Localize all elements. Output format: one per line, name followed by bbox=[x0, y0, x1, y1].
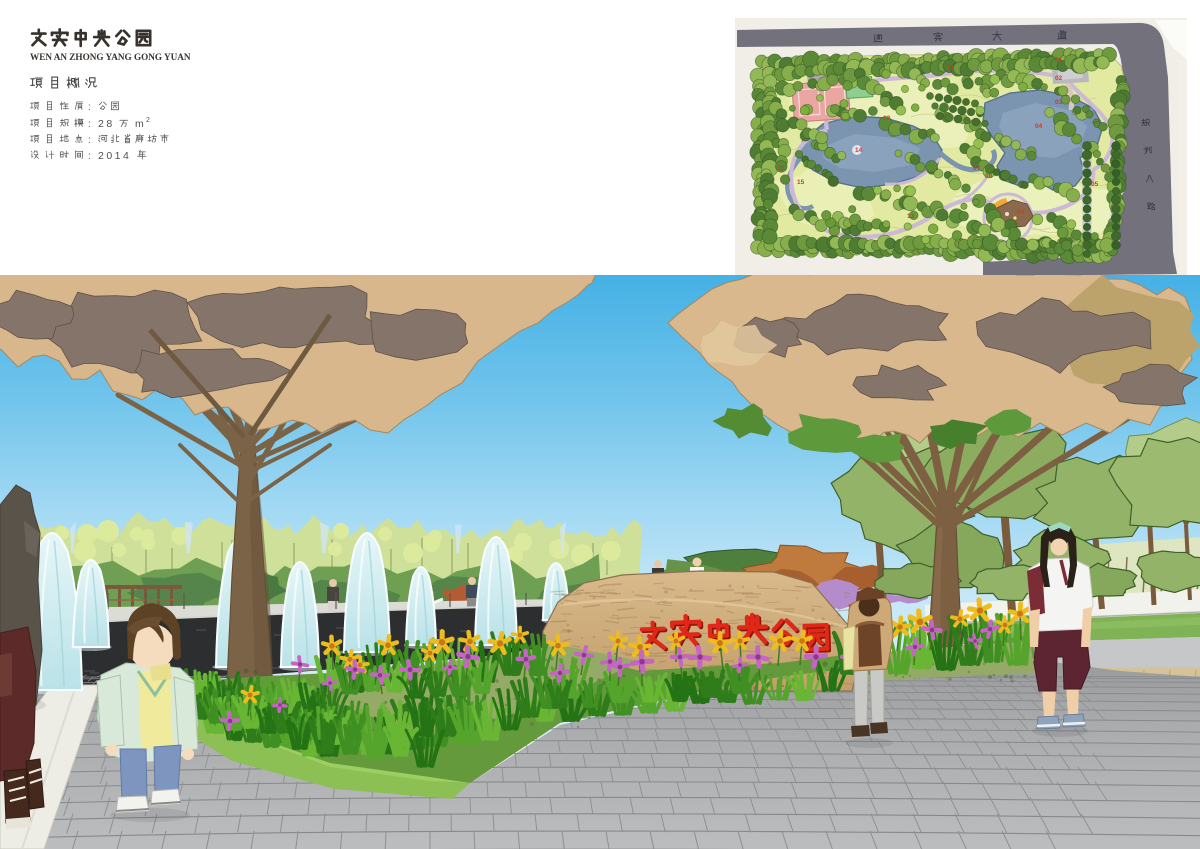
svg-text:02: 02 bbox=[1055, 75, 1063, 82]
svg-text::: : bbox=[88, 151, 93, 162]
svg-text:2014: 2014 bbox=[98, 150, 131, 162]
svg-text:14: 14 bbox=[855, 147, 863, 154]
svg-text:16: 16 bbox=[777, 165, 785, 172]
svg-text::: : bbox=[88, 135, 93, 146]
svg-text:13: 13 bbox=[907, 213, 915, 220]
svg-text::: : bbox=[88, 119, 93, 130]
svg-text::: : bbox=[88, 102, 93, 113]
svg-text:08: 08 bbox=[985, 173, 993, 180]
svg-text:12: 12 bbox=[883, 115, 891, 122]
svg-text:01: 01 bbox=[1055, 57, 1063, 64]
svg-text:WEN AN ZHONG YANG GONG YUAN: WEN AN ZHONG YANG GONG YUAN bbox=[30, 52, 191, 62]
svg-text:09: 09 bbox=[1017, 209, 1025, 216]
svg-text:11: 11 bbox=[947, 65, 954, 72]
svg-text:m: m bbox=[135, 118, 145, 130]
svg-text:04: 04 bbox=[1035, 123, 1043, 130]
svg-text:15: 15 bbox=[797, 179, 805, 186]
svg-text:2: 2 bbox=[146, 117, 150, 124]
svg-text:05: 05 bbox=[1091, 181, 1099, 188]
svg-text:28: 28 bbox=[98, 118, 115, 130]
svg-text:03: 03 bbox=[1055, 99, 1063, 106]
svg-text:07: 07 bbox=[973, 165, 981, 172]
